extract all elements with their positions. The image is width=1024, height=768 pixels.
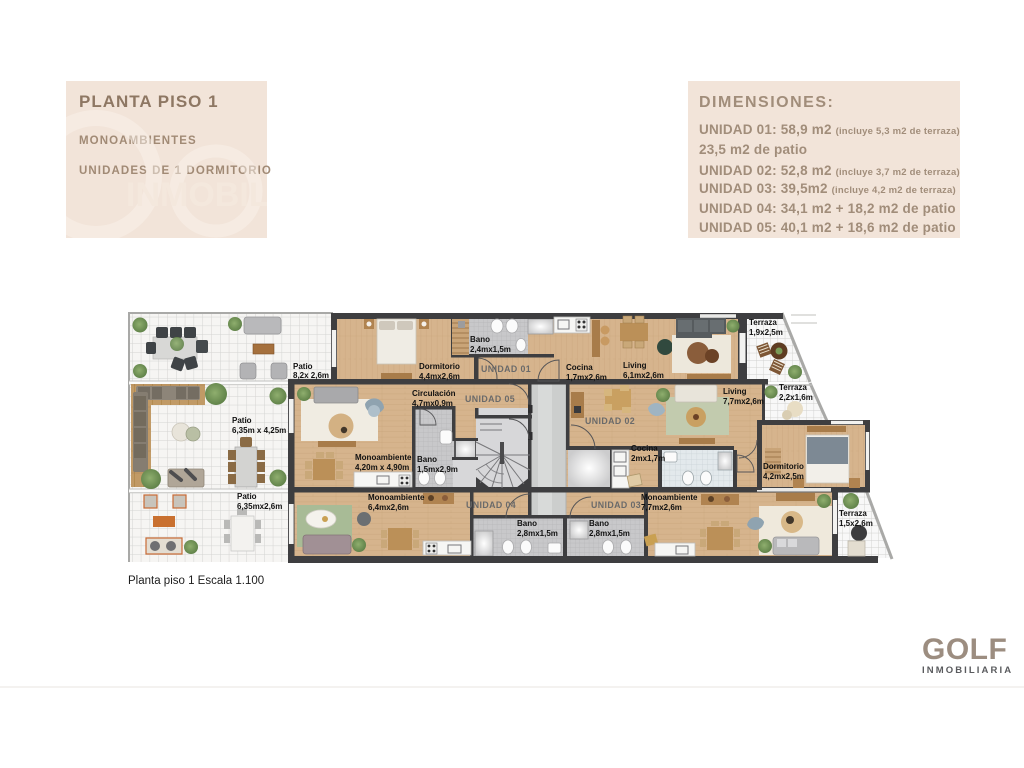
svg-text:Monoambiente: Monoambiente — [355, 453, 412, 462]
svg-text:Cocina: Cocina — [566, 363, 593, 372]
svg-text:UNIDAD 01: UNIDAD 01 — [481, 364, 531, 374]
svg-text:Terraza: Terraza — [839, 509, 867, 518]
svg-text:4,20m x 4,90m: 4,20m x 4,90m — [355, 463, 409, 472]
svg-text:1,5x2,6m: 1,5x2,6m — [839, 519, 873, 528]
svg-text:Patio: Patio — [232, 416, 252, 425]
svg-text:7,7mx2,6m: 7,7mx2,6m — [723, 397, 764, 406]
svg-text:2,8mx1,5m: 2,8mx1,5m — [589, 529, 630, 538]
svg-text:Bano: Bano — [470, 335, 490, 344]
svg-text:2,8mx1,5m: 2,8mx1,5m — [517, 529, 558, 538]
svg-text:Monoambiente: Monoambiente — [368, 493, 425, 502]
svg-text:6,4mx2,6m: 6,4mx2,6m — [368, 503, 409, 512]
svg-text:1,9x2,5m: 1,9x2,5m — [749, 328, 783, 337]
svg-text:4,2mx2,5m: 4,2mx2,5m — [763, 472, 804, 481]
svg-text:6,35mx2,6m: 6,35mx2,6m — [237, 502, 282, 511]
svg-text:UNIDAD 03: UNIDAD 03 — [591, 500, 641, 510]
svg-text:UNIDAD 04: UNIDAD 04 — [466, 500, 516, 510]
svg-text:Living: Living — [623, 361, 647, 370]
svg-text:4,7mx0,9m: 4,7mx0,9m — [412, 399, 453, 408]
svg-text:4,4mx2,6m: 4,4mx2,6m — [419, 372, 460, 381]
svg-text:Terraza: Terraza — [779, 383, 807, 392]
svg-text:Cocina: Cocina — [631, 444, 658, 453]
svg-text:Terraza: Terraza — [749, 318, 777, 327]
svg-text:6,1mx2,6m: 6,1mx2,6m — [623, 371, 664, 380]
svg-text:2mx1,7m: 2mx1,7m — [631, 454, 665, 463]
svg-text:Dormitorio: Dormitorio — [763, 462, 804, 471]
svg-text:2,4mx1,5m: 2,4mx1,5m — [470, 345, 511, 354]
svg-text:1,7mx2,6m: 1,7mx2,6m — [566, 373, 607, 382]
svg-text:1,5mx2,9m: 1,5mx2,9m — [417, 465, 458, 474]
svg-text:UNIDAD 05: UNIDAD 05 — [465, 394, 515, 404]
svg-text:Circulación: Circulación — [412, 389, 456, 398]
svg-text:Dormitorio: Dormitorio — [419, 362, 460, 371]
svg-text:Patio: Patio — [237, 492, 257, 501]
svg-text:8,2x 2,6m: 8,2x 2,6m — [293, 371, 329, 380]
svg-text:UNIDAD 02: UNIDAD 02 — [585, 416, 635, 426]
svg-text:6,35m x 4,25m: 6,35m x 4,25m — [232, 426, 286, 435]
svg-text:7,7mx2,6m: 7,7mx2,6m — [641, 503, 682, 512]
svg-text:Bano: Bano — [517, 519, 537, 528]
svg-text:Monoambiente: Monoambiente — [641, 493, 698, 502]
svg-text:2,2x1,6m: 2,2x1,6m — [779, 393, 813, 402]
svg-text:Bano: Bano — [589, 519, 609, 528]
svg-text:Bano: Bano — [417, 455, 437, 464]
svg-text:Patio: Patio — [293, 362, 313, 371]
svg-text:Living: Living — [723, 387, 747, 396]
